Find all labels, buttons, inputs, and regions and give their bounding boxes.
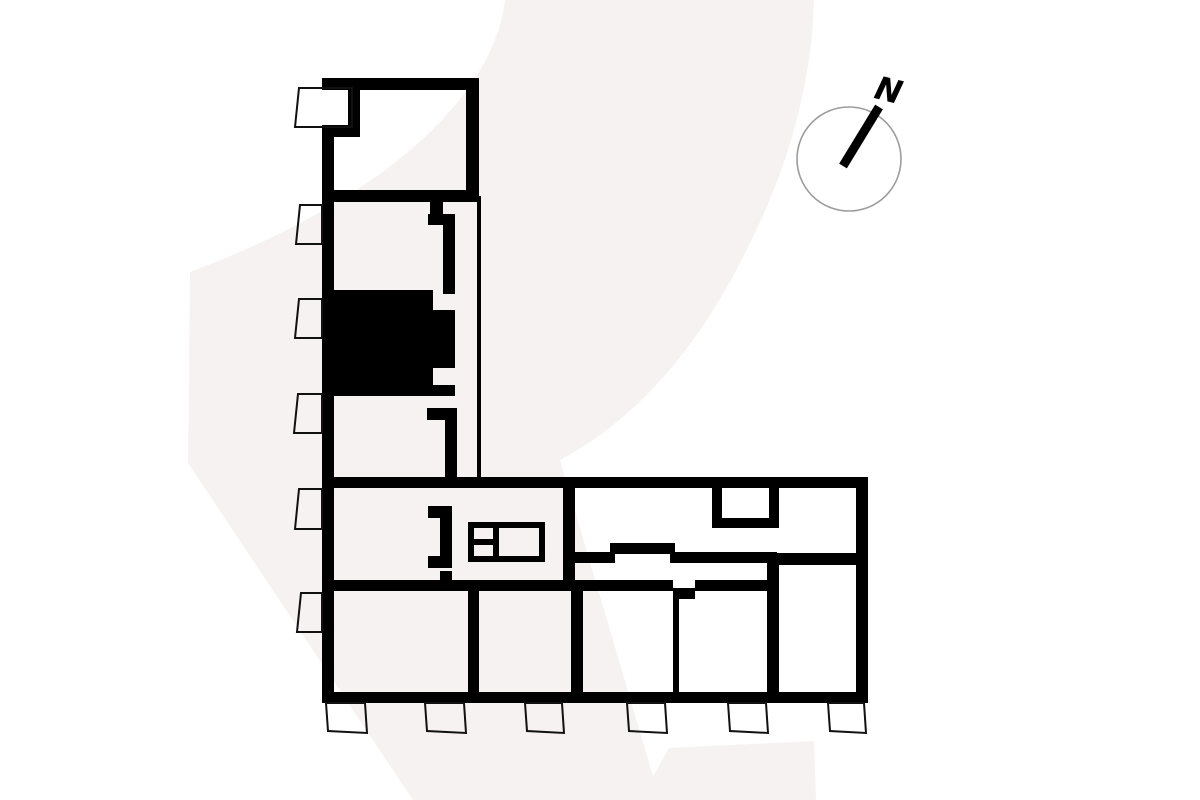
north-compass: N bbox=[797, 69, 906, 211]
corridor-thin-walls bbox=[477, 196, 481, 480]
floorplan-canvas: N bbox=[0, 0, 1200, 800]
compass-north-label: N bbox=[871, 69, 906, 112]
compass-needle-icon bbox=[843, 107, 879, 166]
watermark-logo-2 bbox=[188, 0, 816, 800]
